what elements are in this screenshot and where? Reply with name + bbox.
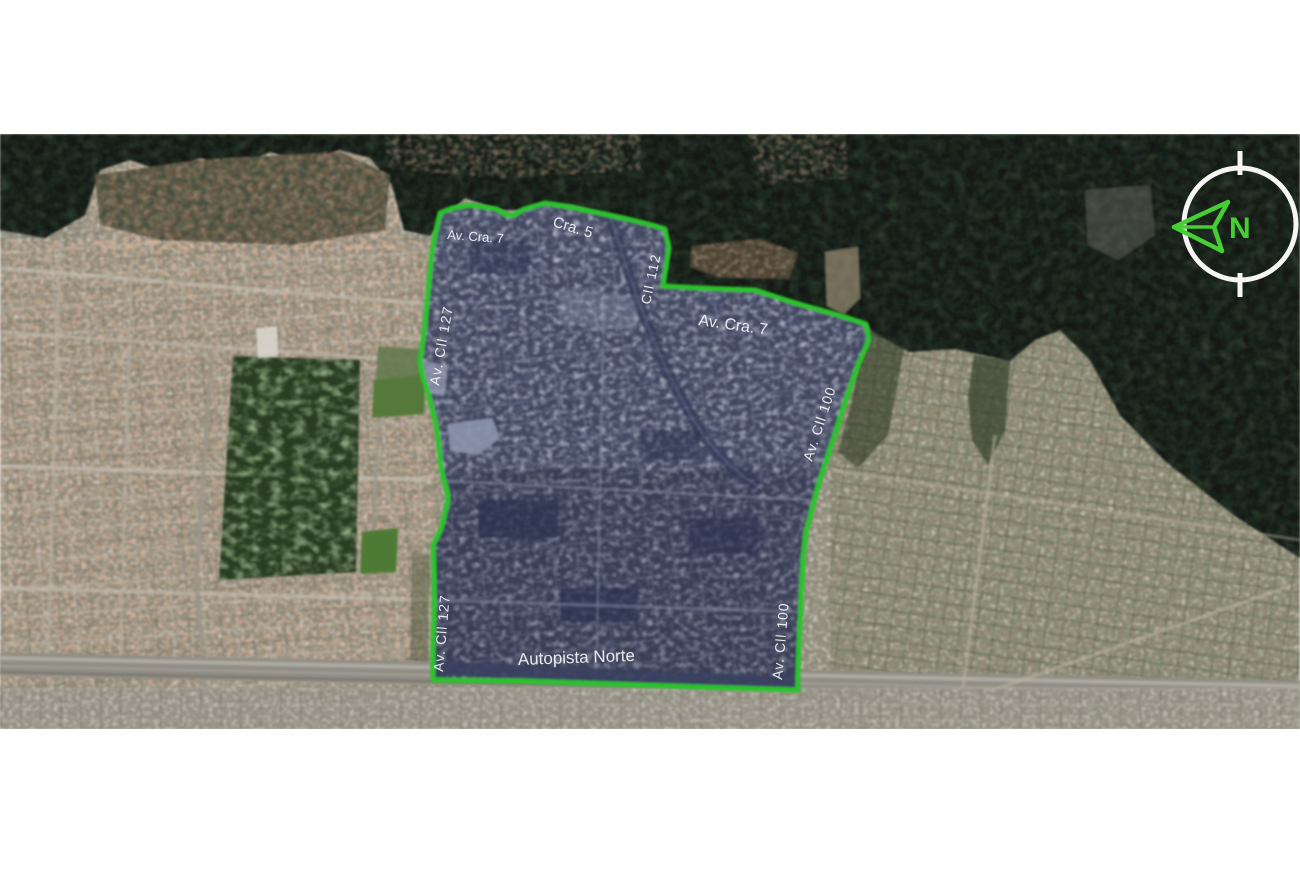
svg-text:N: N <box>1229 212 1251 245</box>
